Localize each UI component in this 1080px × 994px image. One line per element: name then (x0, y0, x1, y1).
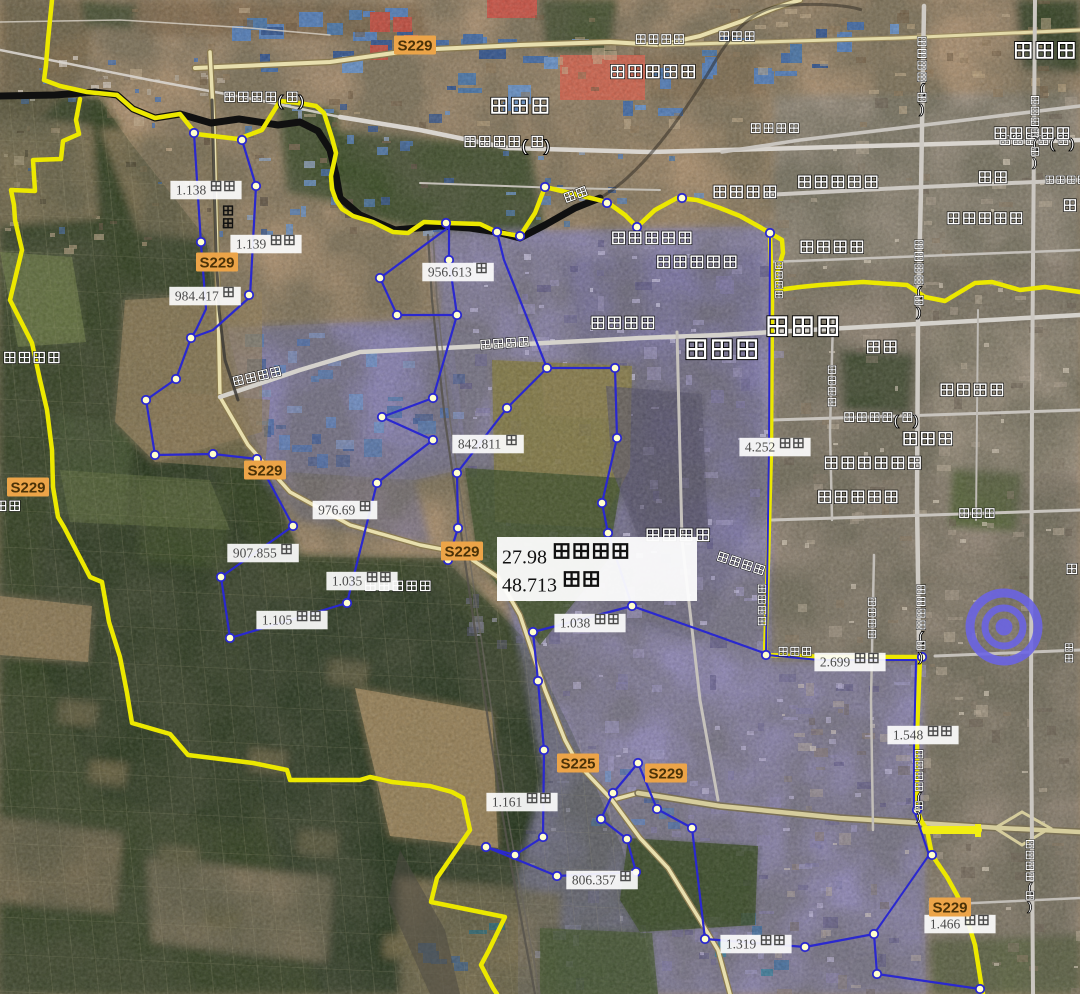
svg-text:): ) (917, 305, 921, 319)
svg-text:1.105: 1.105 (262, 612, 293, 627)
svg-text:): ) (1028, 901, 1032, 913)
svg-text:S229: S229 (444, 544, 479, 561)
svg-text:1.161: 1.161 (492, 794, 522, 809)
svg-text:(: ( (894, 413, 899, 428)
svg-text:S225: S225 (560, 756, 595, 773)
svg-text:): ) (920, 102, 924, 116)
svg-text:2.699: 2.699 (820, 654, 851, 669)
svg-text:): ) (545, 138, 550, 155)
svg-text:S229: S229 (247, 463, 282, 480)
svg-text:): ) (919, 650, 923, 664)
svg-text:S229: S229 (199, 255, 234, 272)
svg-text:806.357: 806.357 (572, 872, 616, 887)
svg-text:4.252: 4.252 (745, 439, 775, 454)
svg-text:S229: S229 (397, 38, 432, 55)
svg-text:): ) (299, 93, 304, 109)
svg-text:984.417: 984.417 (175, 288, 219, 303)
svg-text:956.613: 956.613 (428, 264, 472, 279)
svg-text:48.713: 48.713 (502, 574, 557, 596)
svg-text:1.466: 1.466 (930, 916, 961, 931)
svg-text:1.038: 1.038 (560, 615, 591, 630)
svg-text:907.855: 907.855 (233, 545, 277, 560)
svg-text:): ) (914, 413, 918, 428)
svg-text:): ) (917, 811, 921, 823)
svg-text:(: ( (278, 93, 283, 109)
svg-text:S229: S229 (932, 900, 967, 917)
svg-text:): ) (1033, 157, 1037, 169)
svg-text:1.139: 1.139 (236, 236, 267, 251)
svg-text:1.319: 1.319 (726, 936, 757, 951)
svg-text:1.035: 1.035 (332, 573, 363, 588)
svg-text:S229: S229 (648, 766, 683, 783)
svg-text:1.138: 1.138 (176, 182, 207, 197)
svg-text:842.811: 842.811 (458, 436, 501, 451)
svg-text:S229: S229 (10, 480, 45, 497)
svg-text:1.548: 1.548 (893, 727, 924, 742)
svg-text:27.98: 27.98 (502, 546, 547, 568)
svg-text:): ) (1070, 136, 1074, 151)
svg-text:976.69: 976.69 (318, 502, 355, 517)
svg-text:(: ( (522, 138, 527, 155)
